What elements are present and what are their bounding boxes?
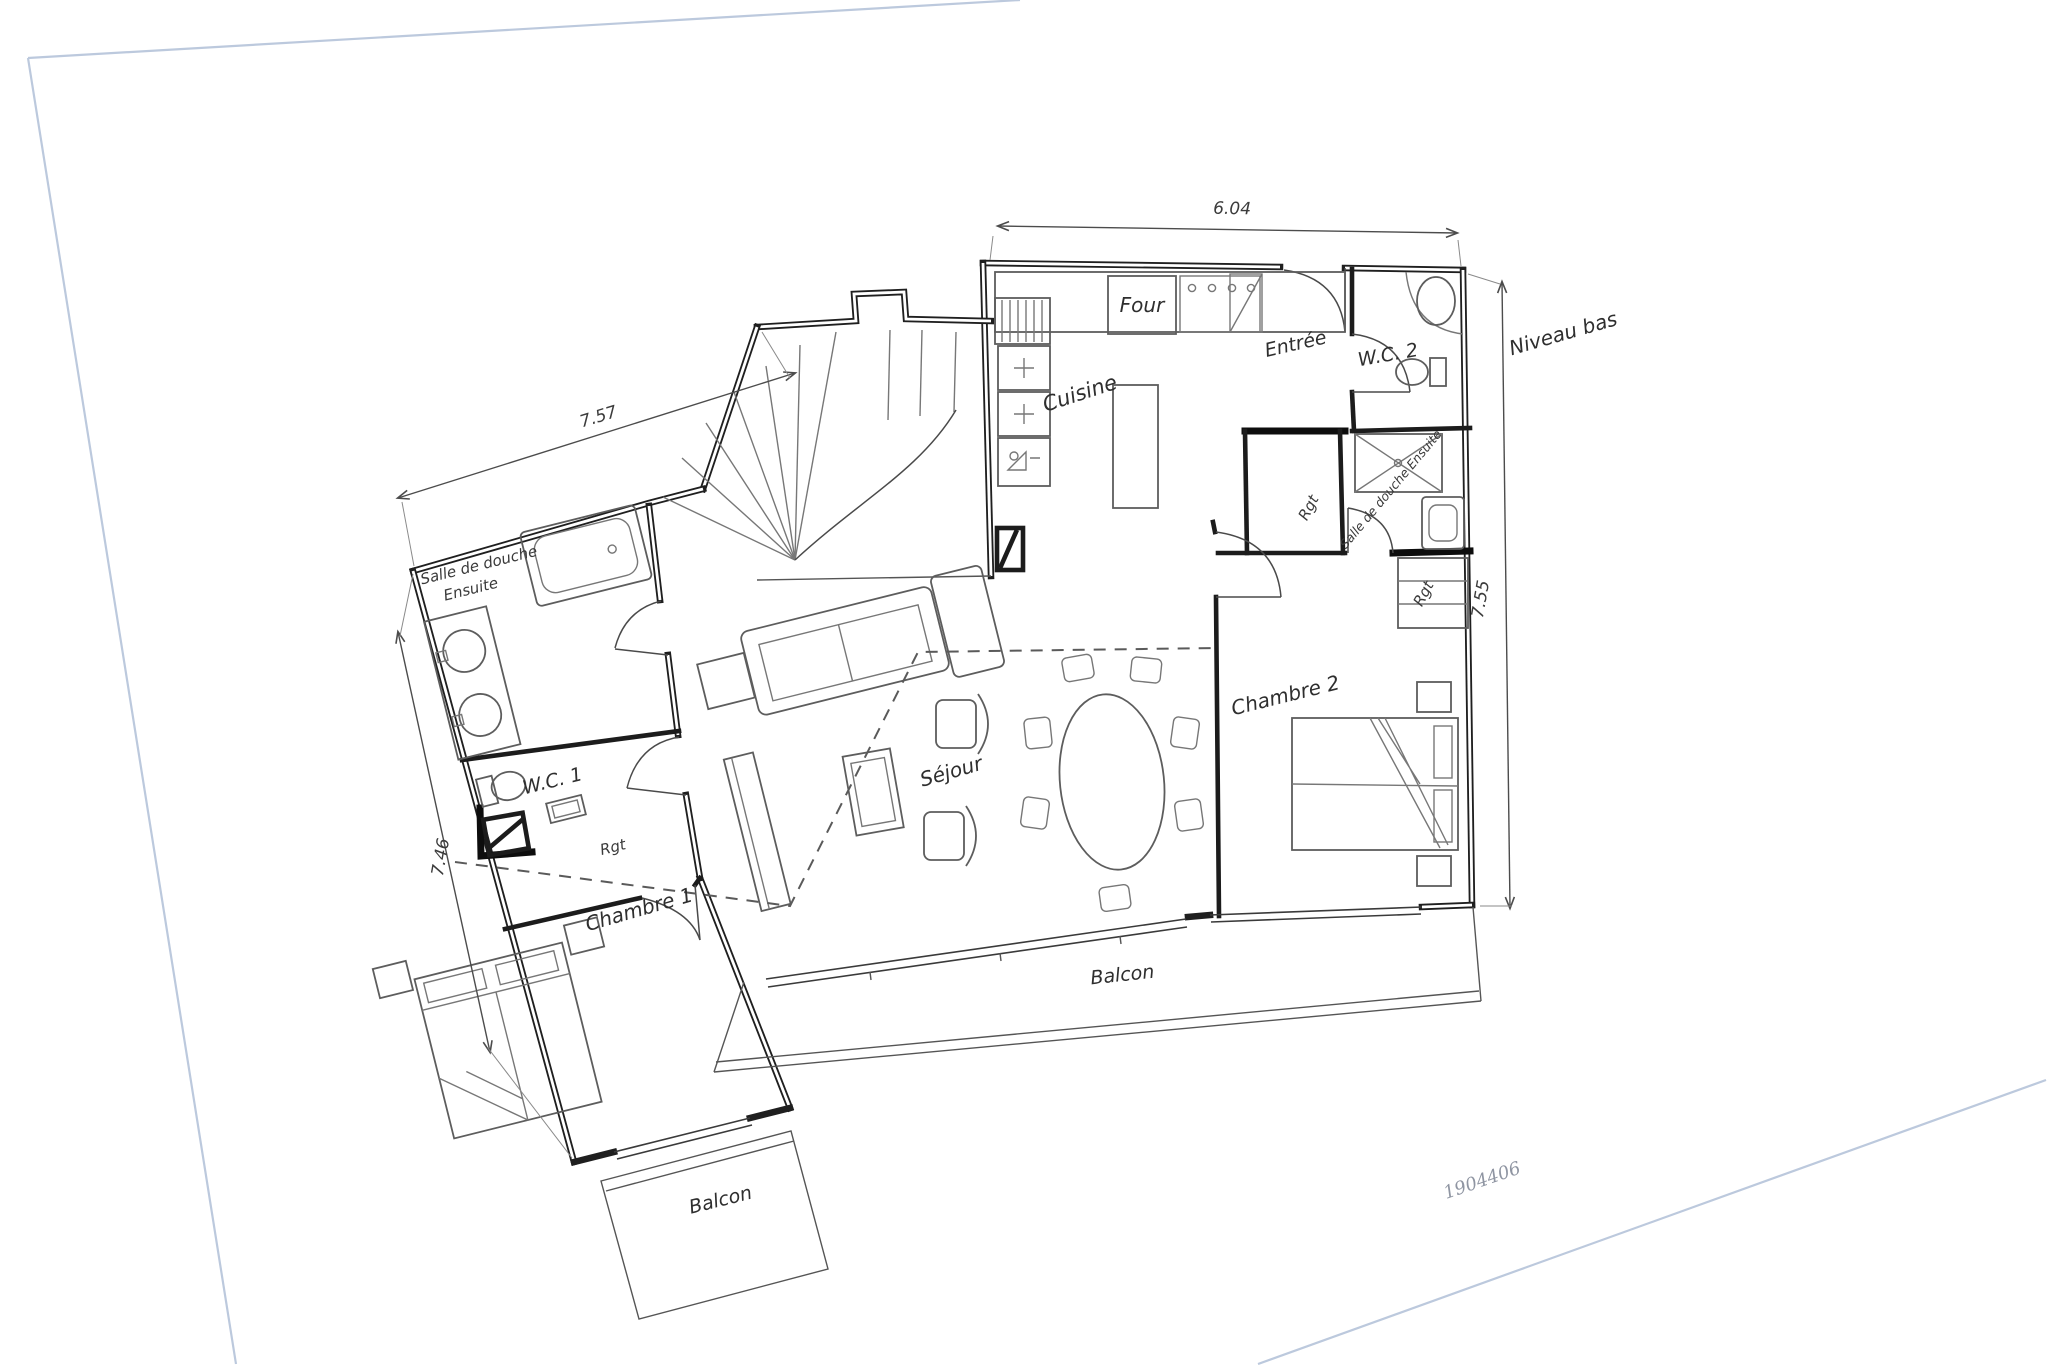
niveau-bas-note: Niveau bas <box>1506 306 1620 360</box>
label-rgt-chambre1: Rgt <box>598 835 628 859</box>
label-cuisine: Cuisine <box>1040 370 1120 417</box>
label-balcon-chambre1: Balcon <box>687 1182 754 1219</box>
window-walls <box>614 907 1422 1159</box>
label-sejour: Séjour <box>917 750 987 791</box>
armchair <box>924 806 976 866</box>
dim-left-wing-top <box>398 373 795 498</box>
chambre2-furniture <box>1292 682 1458 886</box>
dining-set <box>1020 654 1204 912</box>
chaise <box>930 565 1006 678</box>
kitchen-counter <box>995 272 1345 332</box>
drawing-reference-number: 1904406 <box>1441 1158 1524 1204</box>
vanity <box>424 606 520 759</box>
label-chambre1: Chambre 1 <box>583 882 696 936</box>
dining-table <box>1051 689 1173 875</box>
kitchen-fittings <box>995 272 1345 570</box>
label-rgt-entree: Rgt <box>1295 491 1324 523</box>
scanned-floor-plan-page: Four Cuisine Entrée W.C. 2 Salle de douc… <box>0 0 2048 1365</box>
label-chambre2: Chambre 2 <box>1229 670 1342 720</box>
nightstand <box>373 961 413 998</box>
side-table <box>697 653 755 709</box>
dishwasher <box>998 438 1050 486</box>
kitchen-island <box>1113 385 1158 508</box>
dim-text-left-top: 7.57 <box>578 402 620 432</box>
basin <box>439 625 490 676</box>
label-balcon-main: Balcon <box>1089 961 1155 990</box>
dim-text-right-side: 7.55 <box>1468 579 1494 620</box>
dim-top <box>998 226 1457 233</box>
doors <box>615 268 1410 940</box>
label-wc2: W.C. 2 <box>1356 339 1420 371</box>
outer-walls <box>413 263 1472 1162</box>
nightstand <box>1417 682 1451 712</box>
nightstand <box>1417 856 1451 886</box>
chambre1-furniture <box>373 913 641 1147</box>
label-wc1: W.C. 1 <box>520 763 584 799</box>
armchair <box>936 694 988 754</box>
dim-text-top: 6.04 <box>1213 199 1251 220</box>
label-four: Four <box>1120 293 1166 317</box>
page-edges <box>28 0 2046 1364</box>
sejour-furniture <box>697 565 1204 912</box>
wc2-basin <box>1417 277 1455 325</box>
console <box>724 752 791 911</box>
wc2-fittings <box>1396 272 1463 386</box>
ensuite-left-fittings <box>424 504 652 759</box>
shower-room-right-fittings <box>1355 434 1464 549</box>
interior-walls <box>462 269 1470 929</box>
coffee-table <box>843 748 904 835</box>
floor-plan-drawing: Four Cuisine Entrée W.C. 2 Salle de douc… <box>0 0 2048 1365</box>
basin <box>455 690 506 741</box>
dim-right-side <box>1502 282 1510 908</box>
